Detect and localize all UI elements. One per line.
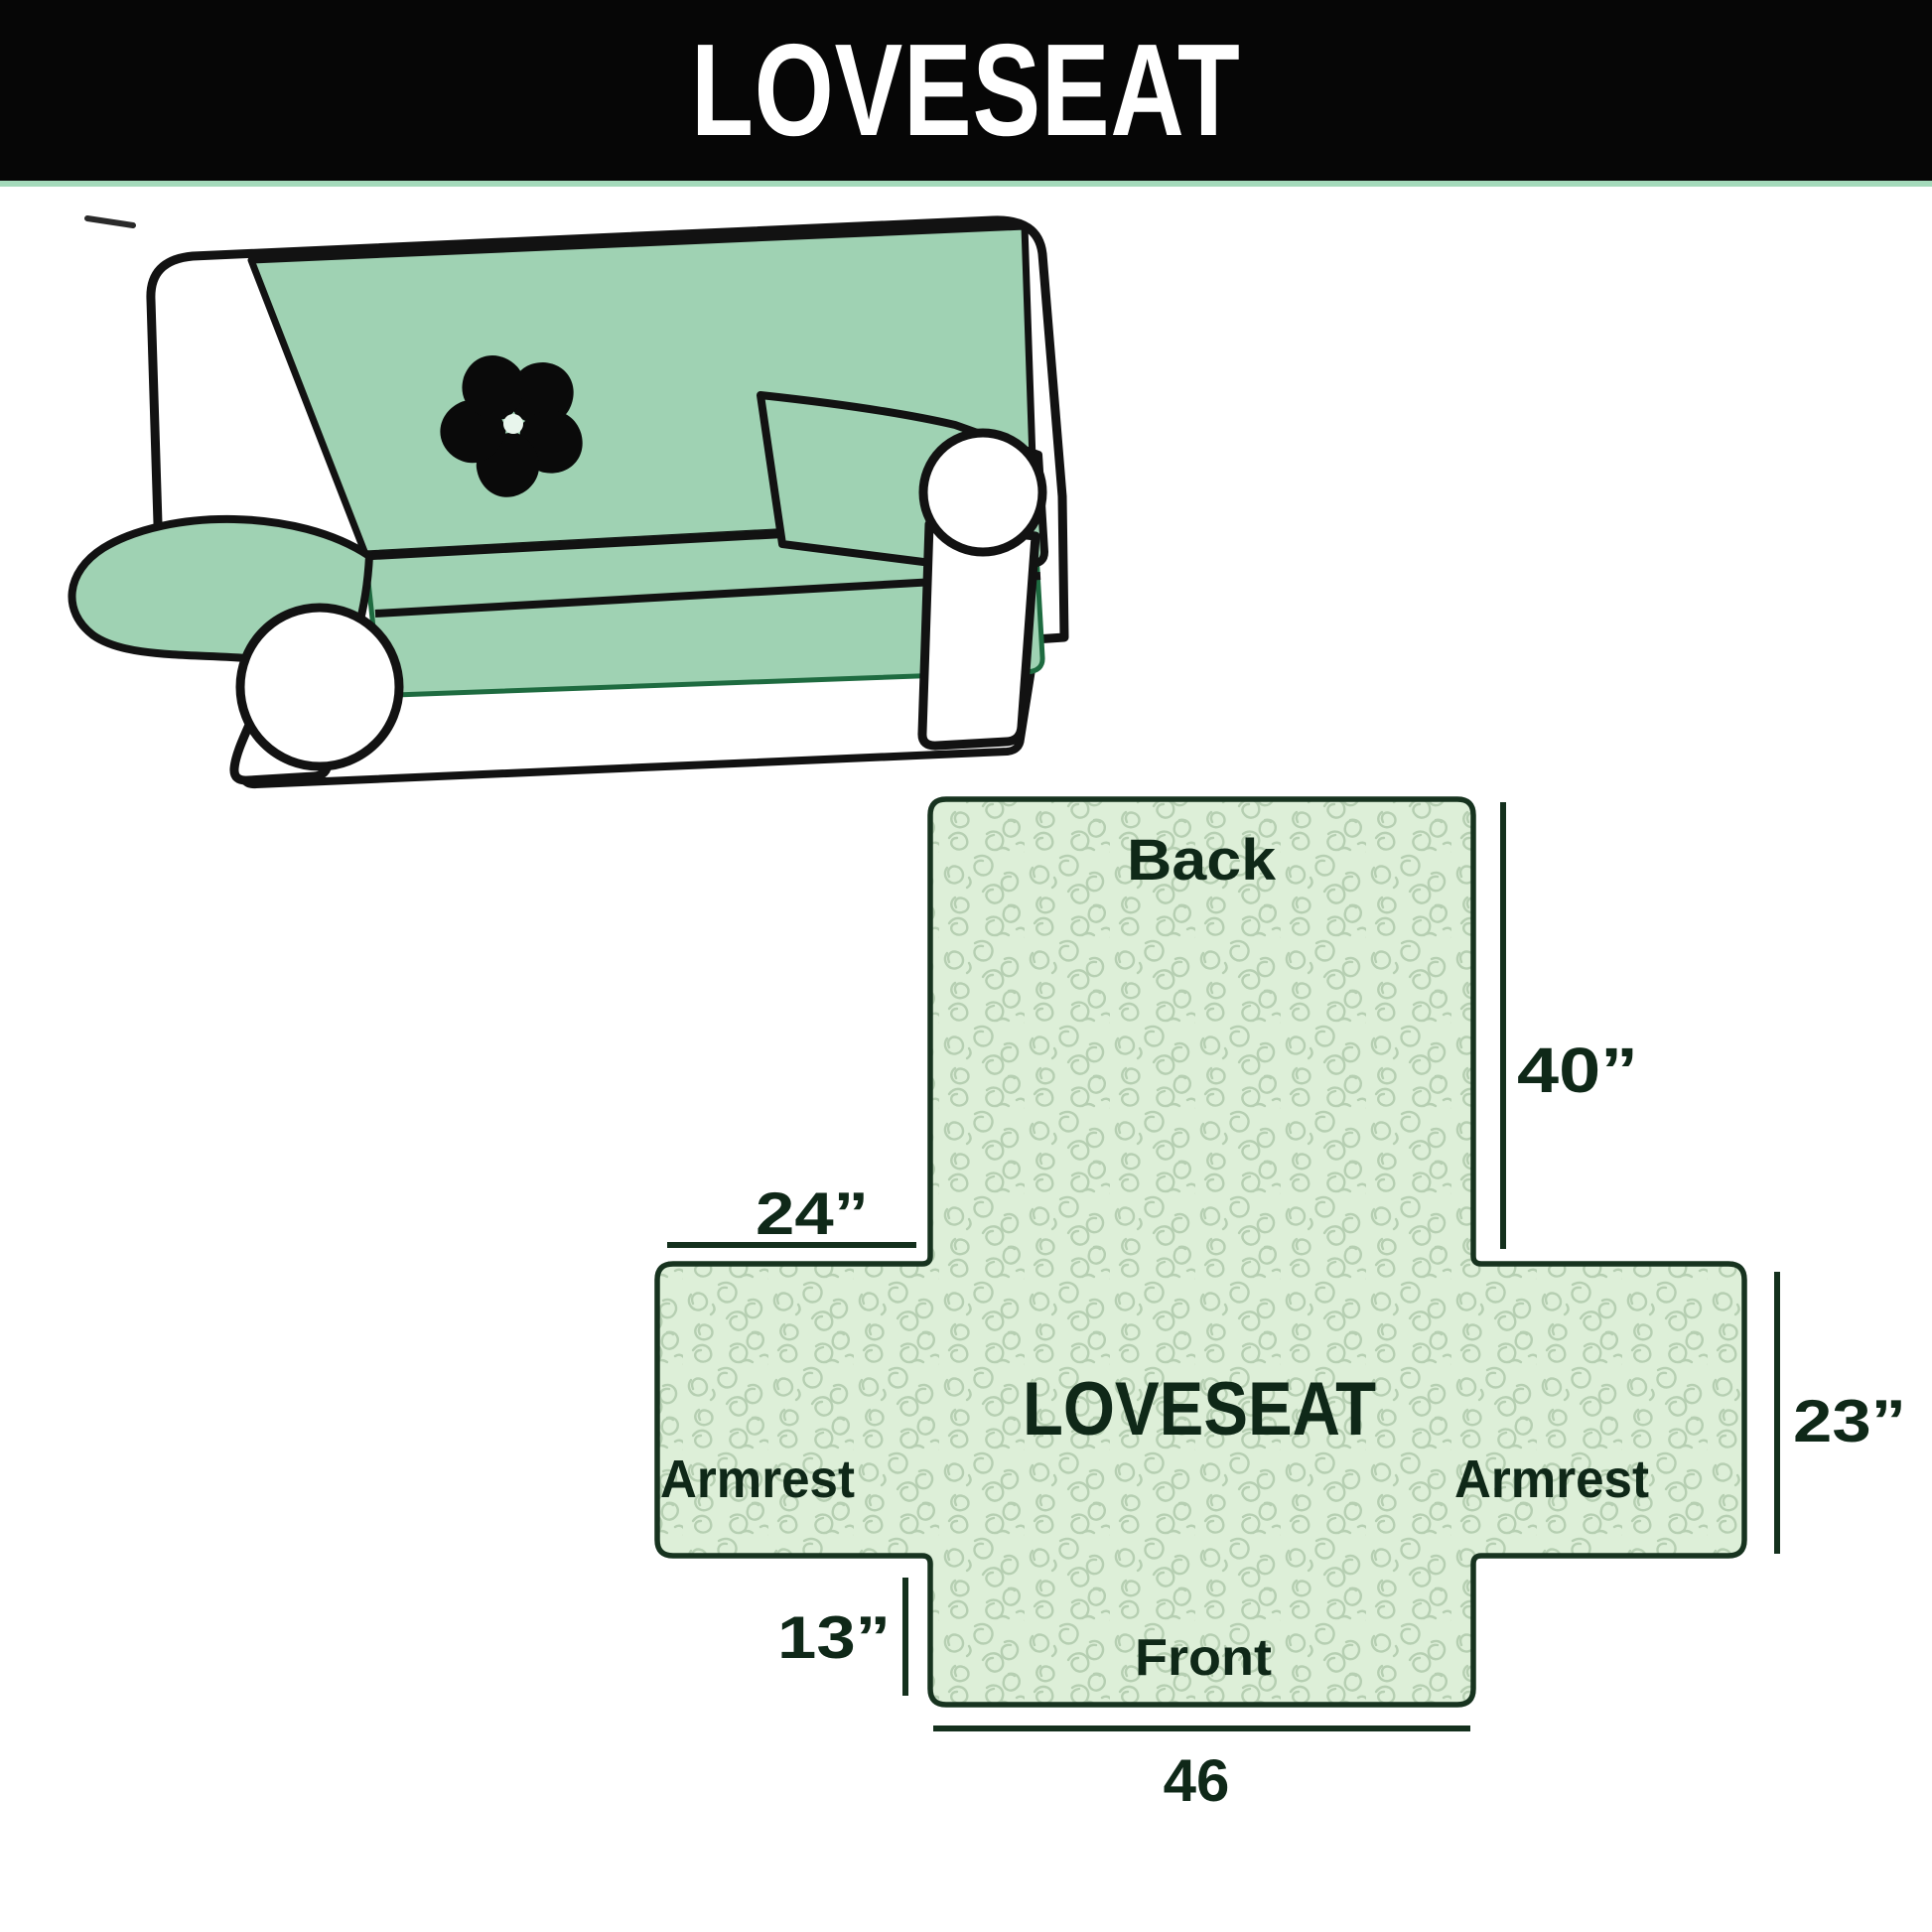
sofa-right-arm-front — [922, 524, 1035, 746]
label-armrest-right: Armrest — [1454, 1449, 1649, 1509]
measurement-front-flap: 13” — [777, 1604, 891, 1671]
sofa-left-arm-roll — [240, 608, 399, 766]
header-bar: LOVESEAT — [0, 0, 1932, 187]
sofa-illustration — [40, 191, 1132, 826]
measurement-front-width: 46 — [1164, 1747, 1230, 1814]
label-front: Front — [1135, 1629, 1272, 1687]
measurement-armrest-width: 24” — [756, 1180, 869, 1247]
page-title: LOVESEAT — [691, 25, 1241, 156]
ink-mark — [87, 218, 133, 225]
measurement-back-height: 40” — [1517, 1035, 1638, 1106]
cutting-diagram: Back LOVESEAT Armrest Armrest Front 40” … — [586, 774, 1932, 1876]
label-back: Back — [1127, 828, 1277, 893]
pinwheel-center-dot — [503, 414, 523, 434]
cutting-diagram-svg: Back LOVESEAT Armrest Armrest Front 40” … — [586, 774, 1932, 1876]
measurement-armrest-height: 23” — [1793, 1388, 1906, 1454]
label-loveseat: LOVESEAT — [1023, 1367, 1376, 1451]
sofa-right-arm-roll — [923, 433, 1042, 552]
label-armrest-left: Armrest — [660, 1449, 855, 1509]
sofa-illustration-svg — [40, 191, 1132, 826]
cover-cross-shape — [657, 799, 1744, 1705]
